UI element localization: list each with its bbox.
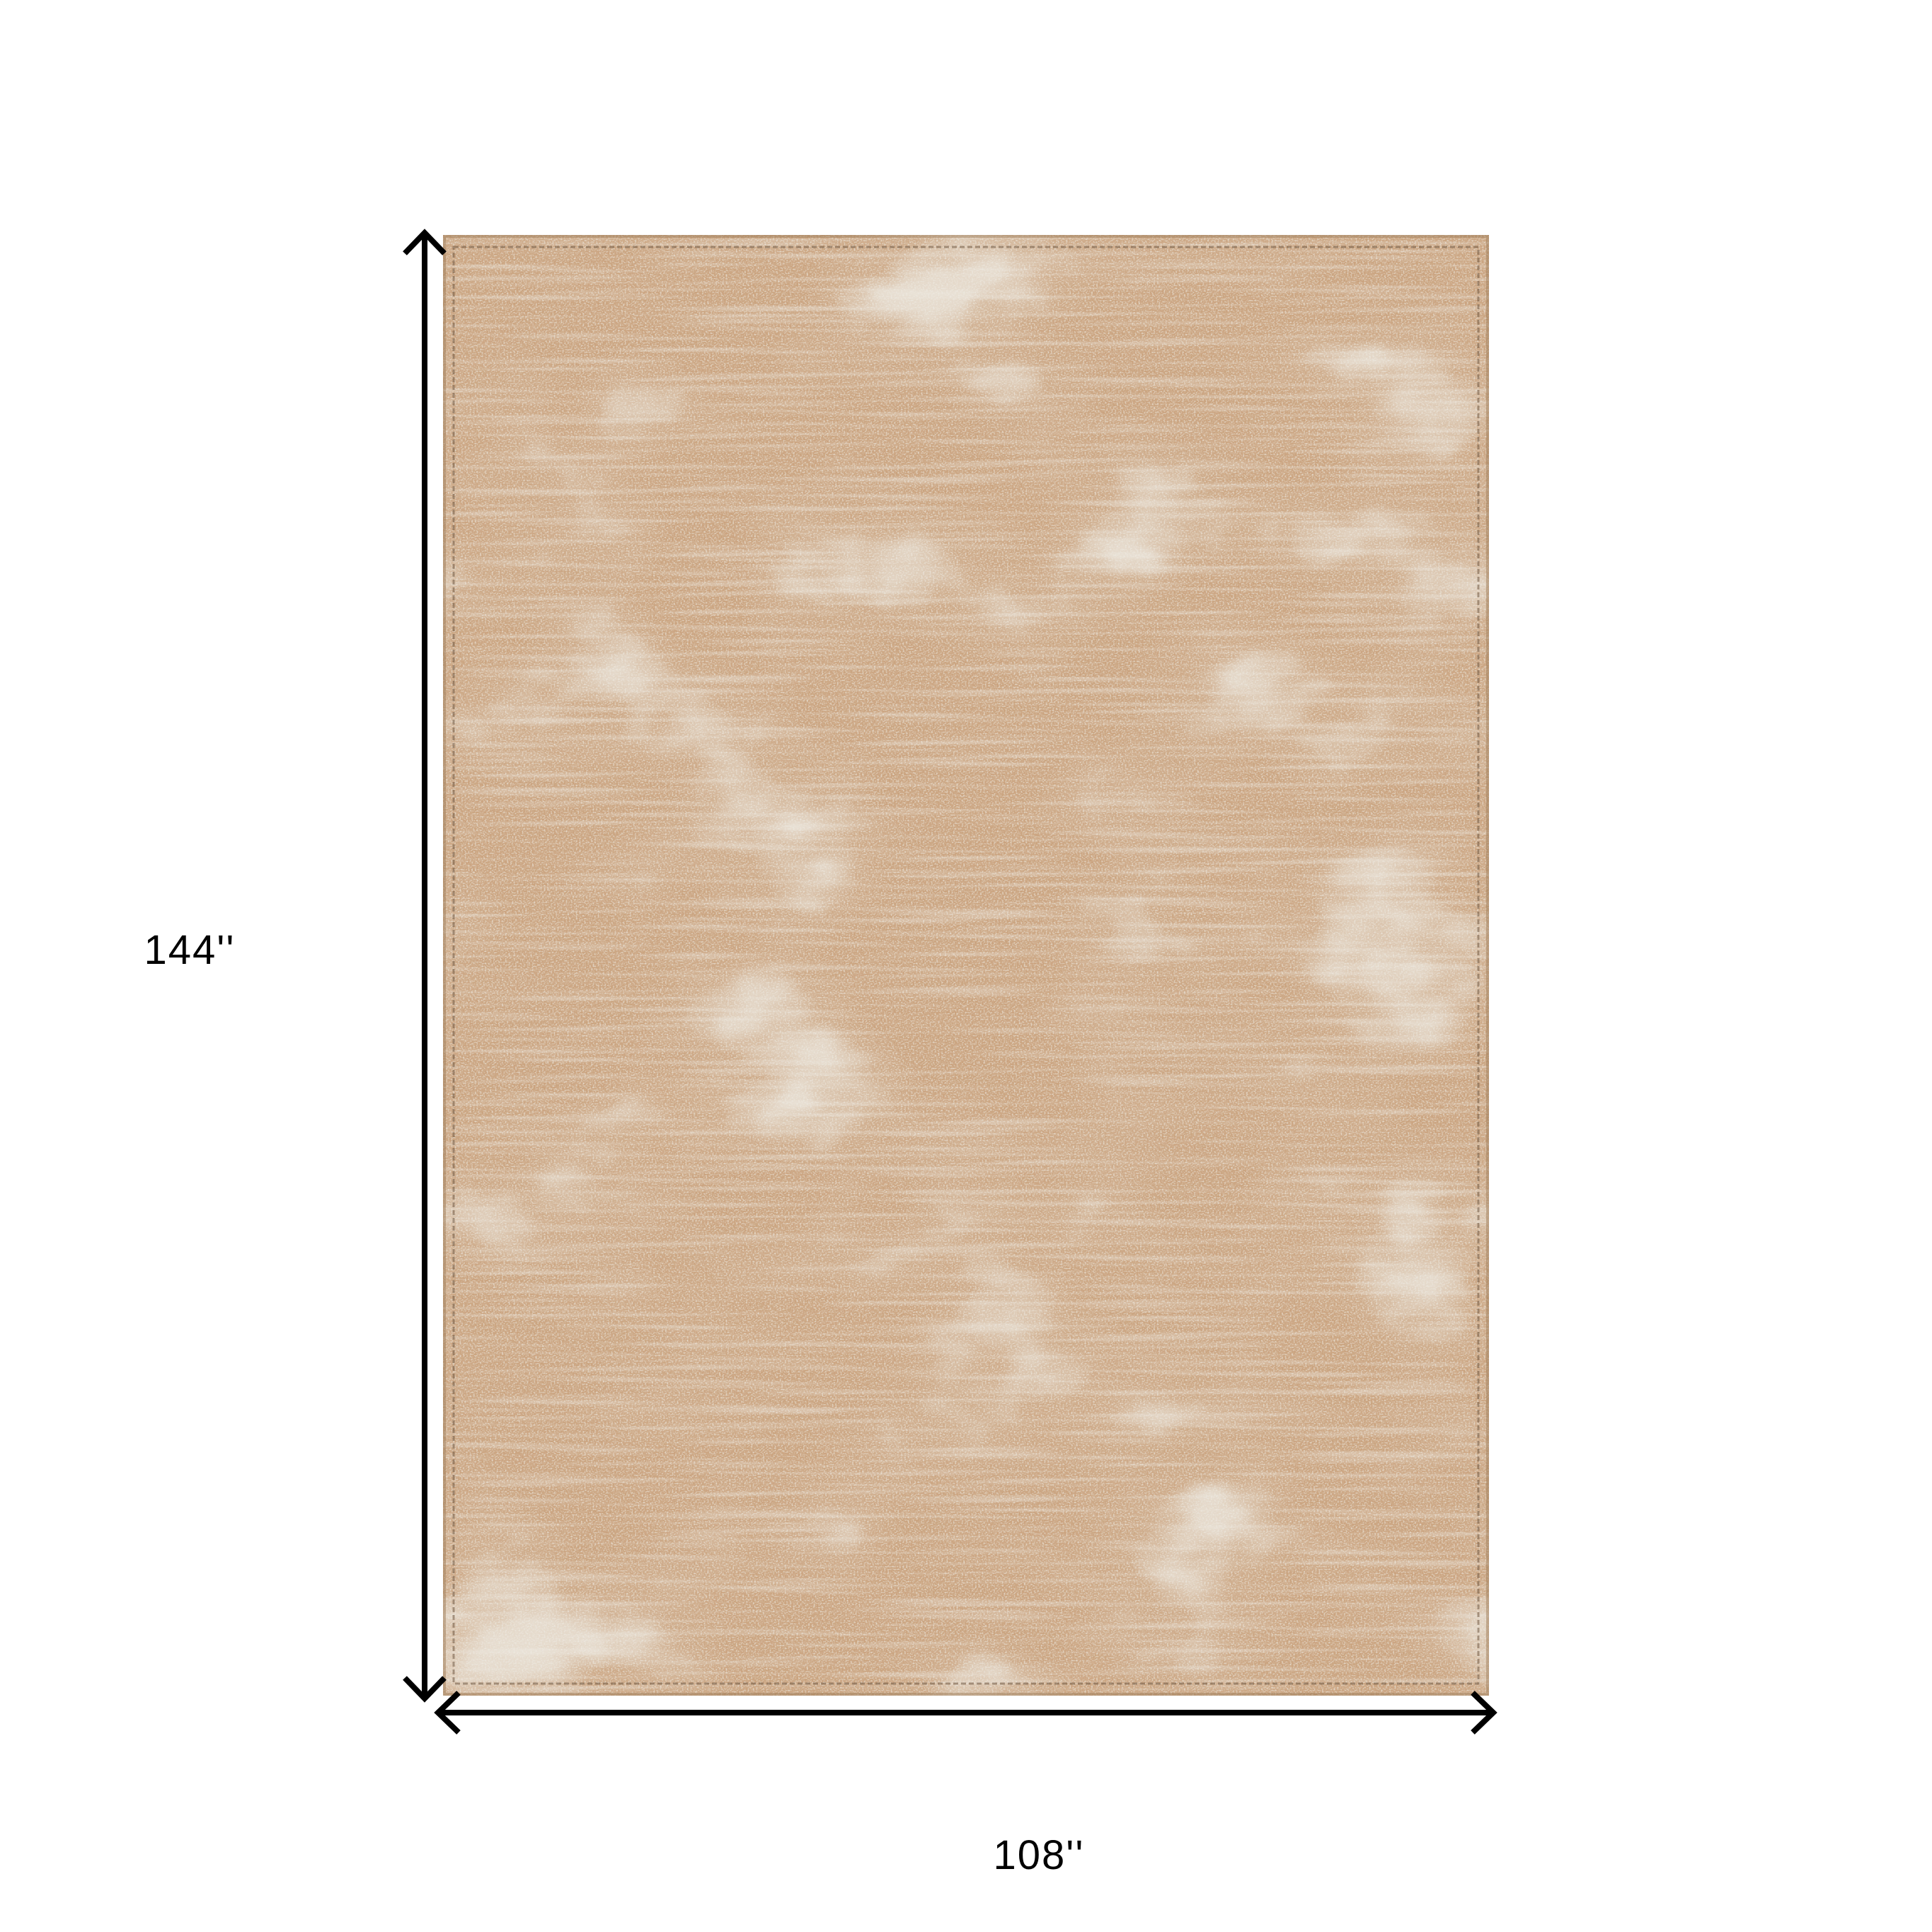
arrowhead-left-icon [438, 1693, 459, 1732]
product-dimension-diagram: 144'' 108'' [0, 0, 1932, 1932]
rug-texture [443, 235, 1489, 1696]
arrowhead-right-icon [1473, 1693, 1493, 1732]
arrowhead-down-icon [405, 1678, 444, 1698]
rug-image [443, 235, 1489, 1696]
rug-blotch-layer [443, 235, 1489, 1696]
width-dimension-arrow [438, 1693, 1493, 1732]
height-dimension-label: 144'' [84, 926, 296, 975]
height-dimension-arrow [405, 233, 444, 1698]
arrowhead-up-icon [405, 233, 444, 253]
width-dimension-label: 108'' [933, 1831, 1145, 1880]
